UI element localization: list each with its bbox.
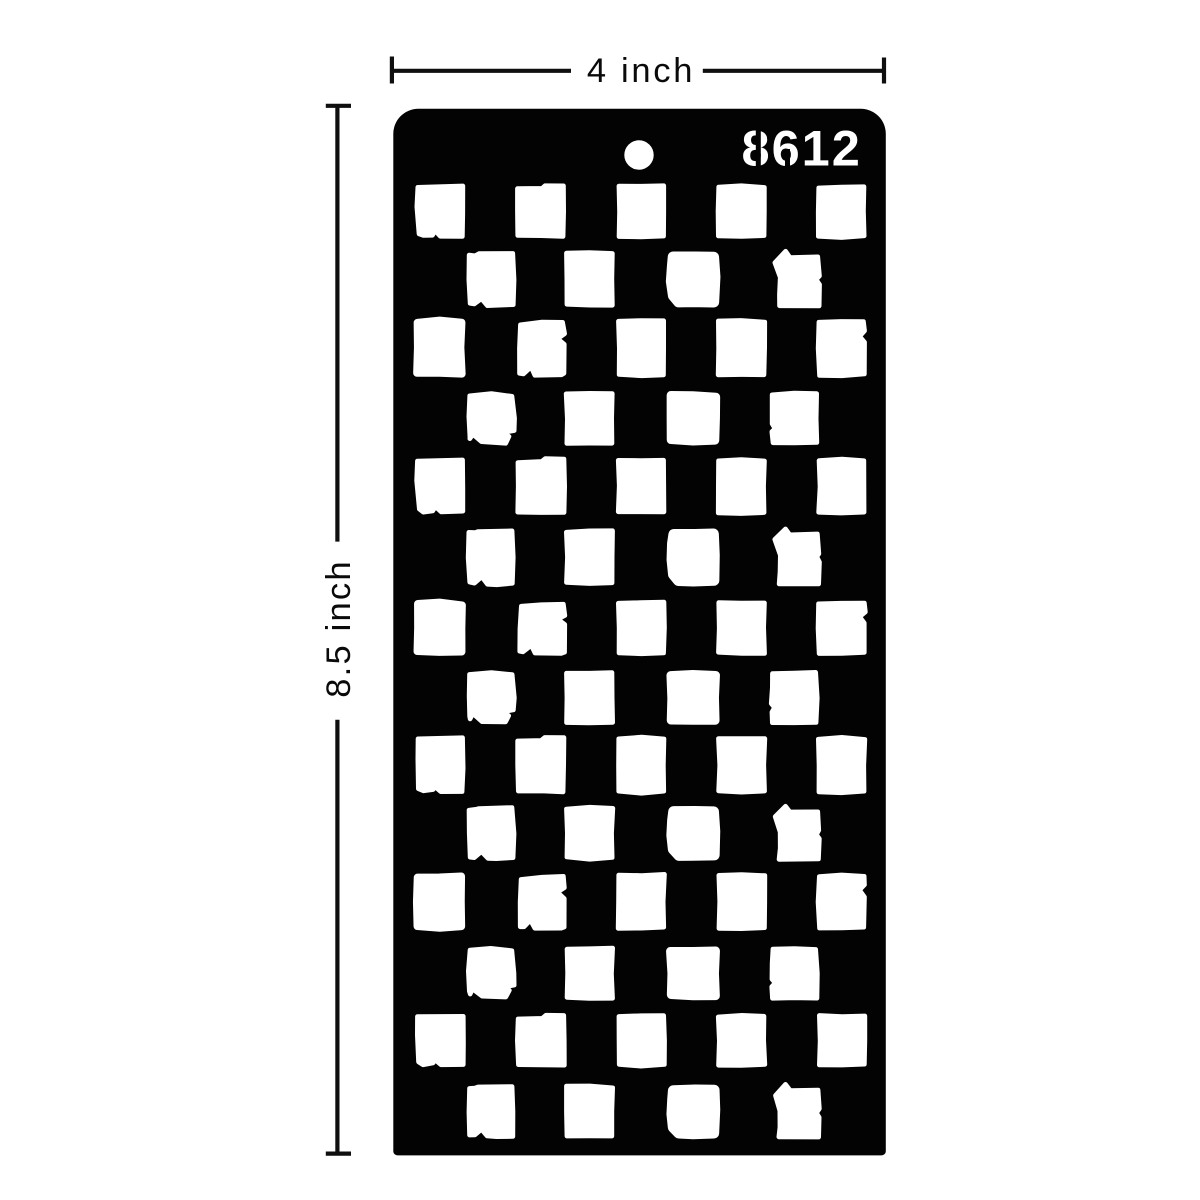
- svg-text:8.5 inch: 8.5 inch: [320, 559, 358, 697]
- svg-text:4 inch: 4 inch: [587, 52, 695, 90]
